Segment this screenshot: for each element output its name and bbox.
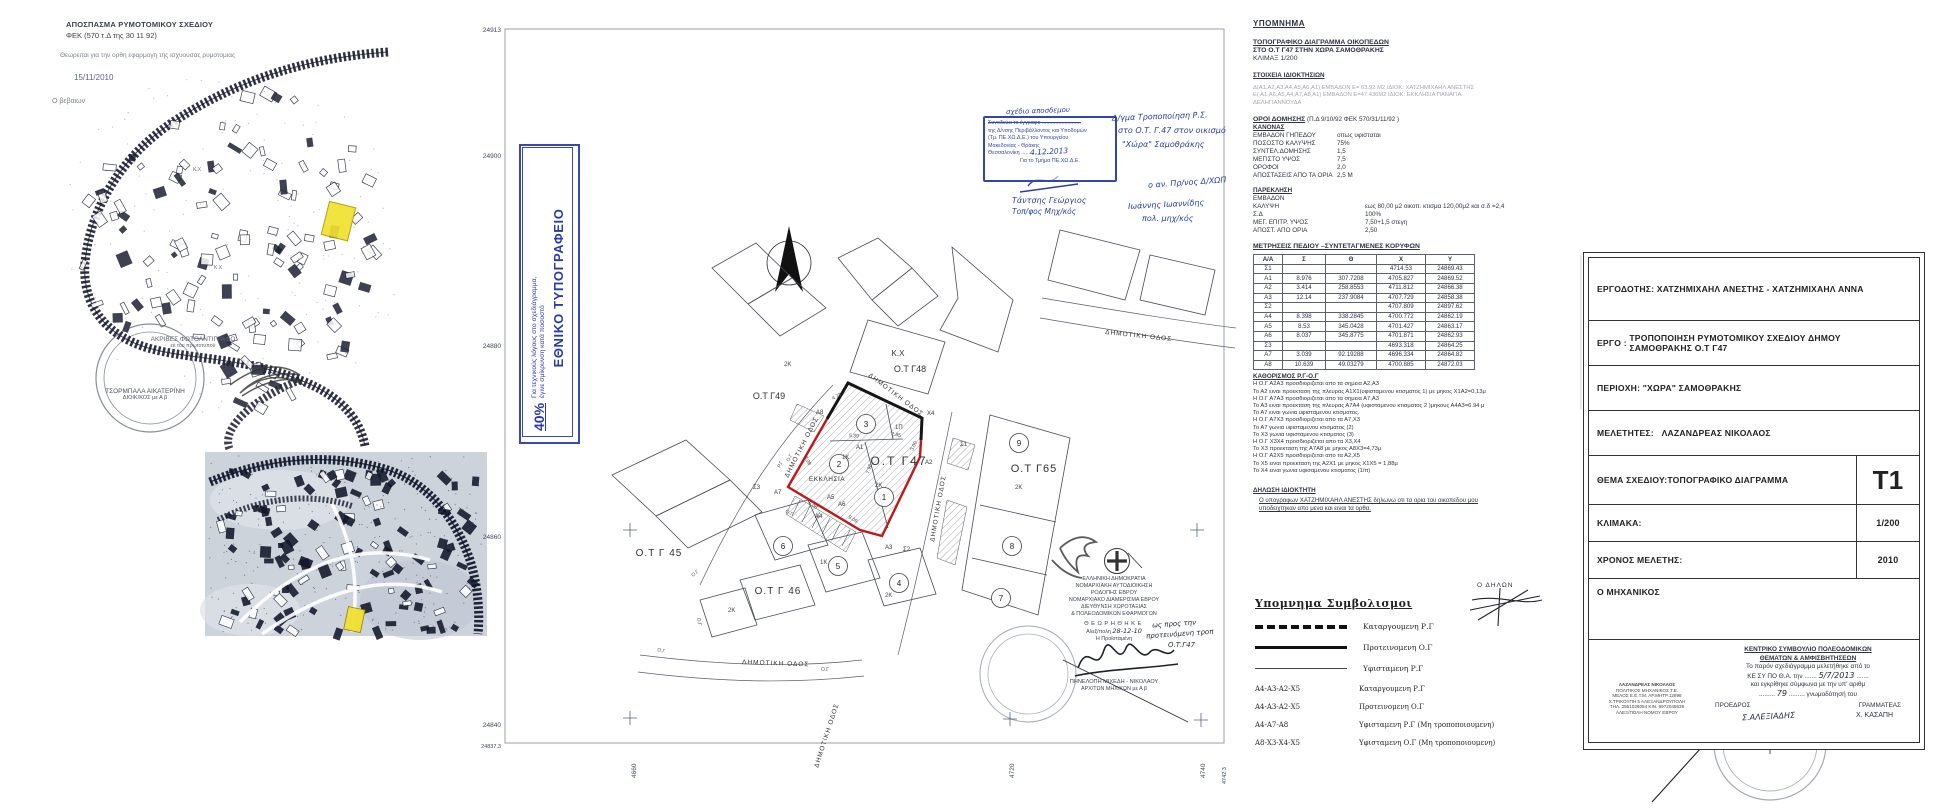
print-note-1: Για τεχνικούς λόγους στο σχεδιάγραμμα, [531, 277, 538, 398]
table-row: Α18.976307.72084705.82724869.52 [1254, 274, 1475, 284]
thin-line-sample [1255, 668, 1347, 669]
stamp-line6: Για το Τμήμα ΠΕ.ΧΩ.Δ.Ε. [988, 158, 1112, 166]
svg-text:Α2: Α2 [925, 460, 933, 466]
svg-text:4742.3: 4742.3 [1222, 767, 1228, 784]
kanonas-title: ΚΑΝΟΝΑΣ [1253, 124, 1577, 132]
approval-l1: ΕΛΛΗΝΙΚΗ ΔΗΜΟΚΡΑΤΙΑ [1033, 576, 1195, 583]
approval-hand-note3: Ο.Τ.Γ47 [1168, 641, 1195, 649]
symbol-code-row: Α4-Α3-Α2-Χ5Καταργουμενη Ρ.Γ [1255, 685, 1555, 693]
col-th: Θ [1326, 255, 1377, 265]
map-extract-bottom [200, 452, 487, 640]
parekl-label: Σ.Δ [1253, 211, 1365, 219]
symbol-label: Καταργουμενη Ρ.Γ [1359, 685, 1425, 693]
kath-line: Το Α7 ειναι γωνια υφισταμενου κτισματος. [1253, 410, 1577, 417]
approval-hand-date: 28-12-10 [1112, 627, 1142, 635]
svg-text:4720: 4720 [1009, 763, 1016, 778]
svg-text:Ο.Τ Γ 46: Ο.Τ Γ 46 [755, 586, 802, 597]
printing-office-box: 40% Για τεχνικούς λόγους στο σχεδιάγραμμ… [519, 144, 580, 444]
svg-text:Ο.Τ Γ49: Ο.Τ Γ49 [753, 391, 785, 401]
svg-text:Χ4: Χ4 [927, 411, 935, 417]
ownership-3: ΔΕΛΗΓΙΑΝΝΟΥΔΑ [1253, 100, 1577, 107]
axis-bottom-labels: 4660 4720 4740 4742.3 [631, 763, 1228, 784]
kanonas-label: ΠΟΣΟΣΤΟ ΚΑΛΥΨΗΣ [1253, 140, 1337, 148]
svg-text:3: 3 [864, 420, 869, 429]
svg-text:1Κ: 1Κ [820, 560, 827, 566]
decl-line2: υποδειχτηκαν απο μενα και ειναι τα ορθα. [1259, 505, 1577, 513]
table-row: Α312.14237.90844707.72924858.38 [1254, 293, 1475, 303]
approval-l4: ΝΟΜΑΡΧΙΑΚΟ ΔΙΑΜΕΡΙΣΜΑ ΕΒΡΟΥ [1033, 597, 1195, 604]
kath-line: Το Α3 ειναι προεκταση της πλευρας Α7Α4 (… [1253, 403, 1577, 410]
svg-text:24837.3: 24837.3 [481, 744, 501, 750]
col-s: Σ [1283, 255, 1326, 265]
council-line: ......... γνωμοδότησή του [1789, 691, 1857, 698]
svg-text:9: 9 [1017, 439, 1022, 448]
parekl-label: ΑΠΟΣΤ. ΑΠΟ ΟΡΙΑ [1253, 227, 1365, 235]
svg-text:2Κ: 2Κ [1015, 485, 1022, 491]
table-row: Σ34693.31824864.25 [1254, 341, 1475, 351]
svg-text:4660: 4660 [631, 763, 638, 778]
scale-label: ΚΛΙΜΑΚΑ: [1589, 505, 1856, 541]
copy-stamp-name: ΤΣΟΡΜΠΑΛΑ ΑΙΚΑΤΕΡΙΝΗ [75, 388, 215, 395]
kath-line: Η Ο.Γ Χ3Χ4 προσδιοριζεται απο τα Χ3,Χ4 [1253, 439, 1577, 446]
extract-header: ΑΠΟΣΠΑΣΜΑ ΡΥΜΟΤΟΜΙΚΟΥ ΣΧΕΔΙΟΥ ΦΕΚ (570 τ… [30, 20, 330, 105]
axis-left-labels: 24913 24900 24880 24860 24840 24837.3 [481, 27, 501, 750]
svg-text:Σ2: Σ2 [903, 547, 911, 553]
engineer-stamp: ΛΑΖΑΝΔΡΕΑΣ ΝΙΚΟΛΑΟΣ ΠΟΛΙΤΙΚΟΣ ΜΗΧΑΝΙΚΟΣ … [1593, 682, 1701, 742]
svg-text:Ο.Γ: Ο.Γ [695, 617, 702, 626]
highlighted-plot-top-map [321, 201, 355, 241]
engineer-label: Ο ΜΗΧΑΝΙΚΟΣ [1597, 587, 1660, 597]
svg-text:24860: 24860 [483, 534, 501, 541]
svg-text:Α5: Α5 [827, 495, 835, 501]
extract-fek: ΦΕΚ (570 τ.Δ της 30 11 92) [66, 31, 330, 40]
kath-line: Το Χ4 ειναι γωνια υφισαμενου κτισματος (… [1253, 468, 1577, 475]
parekl-label: ΕΜΒΑΔΟΝ [1253, 195, 1365, 203]
council-line: ....... [1856, 673, 1868, 680]
svg-text:2Κ: 2Κ [728, 608, 735, 614]
title-block: ΕΡΓΟΔΟΤΗΣ: ΧΑΤΖΗΜΙΧΑΗΛ ΑΝΕΣΤΗΣ - ΧΑΤΖΗΜΙ… [1583, 252, 1925, 750]
extract-title: ΑΠΟΣΠΑΣΜΑ ΡΥΜΟΤΟΜΙΚΟΥ ΣΧΕΔΙΟΥ [66, 20, 330, 29]
legend-column: ΥΠΟΜΝΗΜΑ ΤΟΠΟΓΡΑΦΙΚΟ ΔΙΑΓΡΑΜΜΑ ΟΙΚΟΠΕΔΩΝ… [1253, 20, 1577, 513]
approval-name: ΠΗΝΕΛΟΠΗ ΜΙΧΕΔΗ - ΝΙΚΟΛΑΟΥ [1033, 679, 1195, 686]
kanonas-label: ΜΕΓΙΣΤΟ ΥΨΟΣ [1253, 156, 1337, 164]
parekl-value: 2,50 [1365, 227, 1377, 235]
parekl-value: εως 80,00 μ2 οικοπ. κτισμα 120,00μ2 και … [1365, 203, 1504, 211]
kath-line: Η Ο.Γ Α2Α3 προσδιοριζεται απο τα σημεια … [1253, 381, 1577, 388]
symbol-label: Προτεινομενη Ο.Γ [1363, 643, 1432, 652]
parekl-value: 7,50+1,5 στεγη [1365, 219, 1407, 227]
employer-label: ΕΡΓΟΔΟΤΗΣ: [1597, 284, 1654, 294]
symbol-row: Υφισταμενη Ρ.Γ [1255, 664, 1555, 673]
svg-text:Σ3: Σ3 [753, 485, 761, 491]
copy-stamp-name-block: ΤΣΟΡΜΠΑΛΑ ΑΙΚΑΤΕΡΙΝΗ ΔΙΟΙΚ/ΚΟΣ με Α β [75, 388, 215, 401]
engineer-stamp-line: ΑΛΕΞ/ΠΟΛΗ ΝΟΜΟΥ ΕΒΡΟΥ [1593, 710, 1701, 716]
symbol-label: Υφισταμενη Ρ.Γ [1363, 664, 1423, 673]
decl-line1: Ο υπογραφων ΧΑΤΖΗΜΙΧΑΗΛ ΑΝΕΣΤΗΣ δηλωνω ο… [1259, 497, 1577, 505]
svg-text:Α4: Α4 [815, 514, 823, 520]
symbols-legend: Υπομνημα Συμβολισμοι Καταργουμενη Ρ.Γ Πρ… [1255, 597, 1555, 757]
col-aa: Α/Α [1254, 255, 1283, 265]
coords-table-title: ΜΕΤΡΗΣΕΙΣ ΠΕΔΙΟΥ –ΣΥΝΤΕΤΑΓΜΕΝΕΣ ΚΟΡΥΦΩΝ [1253, 243, 1577, 251]
svg-text:ΔΗΜΟΤΙΚΗ ΟΔΟΣ: ΔΗΜΟΤΙΚΗ ΟΔΟΣ [813, 702, 840, 768]
symbol-row: Καταργουμενη Ρ.Γ [1255, 622, 1555, 631]
svg-text:Ρ.Γ: Ρ.Γ [776, 460, 785, 469]
copy-stamp-text: ΑΚΡΙΒΕΣ ΦΩΤΟΑΝΤΙΓΡΑΦΟ εκ του πρωτοτυπου [128, 336, 258, 349]
sheet-number: Τ1 [1856, 456, 1919, 504]
declarant-label: Ο ΔΗΛΩΝ [1477, 582, 1513, 589]
svg-text:Κ.Χ: Κ.Χ [892, 349, 906, 358]
dashed-line-sample [1255, 625, 1347, 629]
council-title2: ΘΕΜΑΤΩΝ & ΑΜΦΙΣΒΗΤΗΣΕΩΝ [1701, 655, 1915, 664]
area-row: ΠΕΡΙΟΧΗ: "ΧΩΡΑ" ΣΑΜΟΘΡΑΚΗΣ [1589, 366, 1919, 411]
signature-zone: ΛΑΖΑΝΔΡΕΑΣ ΝΙΚΟΛΑΟΣ ΠΟΛΙΤΙΚΟΣ ΜΗΧΑΝΙΚΟΣ … [1589, 640, 1919, 742]
scale-value: 1/200 [1856, 505, 1919, 541]
approval-l3: ΡΟΔΟΠΗΣ ΕΒΡΟΥ [1033, 590, 1195, 597]
project-label: ΕΡΓΟ : [1597, 338, 1627, 348]
extract-date: 15/11/2010 [74, 73, 330, 82]
svg-text:2Κ: 2Κ [885, 593, 892, 599]
project-line1: ΤΡΟΠΟΠΟΙΗΣΗ ΡΥΜΟΤΟΜΙΚΟΥ ΣΧΕΔΙΟΥ ΔΗΜΟΥ [1629, 333, 1840, 343]
symbol-label: Καταργουμενη Ρ.Γ [1363, 622, 1434, 631]
copy-stamp-line1: ΑΚΡΙΒΕΣ ΦΩΤΟΑΝΤΙΓΡΑΦΟ [128, 336, 258, 343]
ownership-1: Δ(Α1,Α2,Α3,Α4,Α5,Α6,Α1) ΕΜΒΑΔΟΝ Ε= 63.92… [1253, 85, 1577, 92]
kath-line: Το Α7 γωνια υφισταμενου κτισματος (2) [1253, 425, 1577, 432]
handstamp-scribble [1052, 537, 1096, 578]
project-row: ΕΡΓΟ : ΤΡΟΠΟΠΟΙΗΣΗ ΡΥΜΟΤΟΜΙΚΟΥ ΣΧΕΔΙΟΥ Δ… [1589, 321, 1919, 366]
legend-sub2: ΣΤΟ Ο.Τ Γ47 ΣΤΗΝ ΧΩΡΑ ΣΑΜΟΘΡΑΚΗΣ [1253, 47, 1577, 55]
kath-line: Το Χ3 γωνια υφισταμενου κτισματος (3) [1253, 432, 1577, 439]
annotation-line6: πολ. μηχ/κός [1142, 214, 1193, 223]
svg-text:7: 7 [999, 594, 1004, 603]
svg-text:Ο.Γ: Ο.Γ [656, 647, 666, 655]
copy-stamp-role: ΔΙΟΙΚ/ΚΟΣ με Α β [75, 395, 215, 401]
kanonas-value: 1,5 [1337, 148, 1346, 156]
kanonas-label: ΕΜΒΑΔΟΝ ΓΗΠΕΔΟΥ [1253, 132, 1337, 140]
table-row: Α58.53345.04284701.42724863.17 [1254, 322, 1475, 332]
vertex-code: Α4-Α7-Α8 [1255, 721, 1359, 729]
annotation-line2: στο Ο.Τ. Γ.47 στον οικισμό [1118, 126, 1226, 135]
council-line: και εγκρίθηκε σύμφωνα με την υπ' αριθμ [1701, 681, 1915, 690]
scale-row: ΚΛΙΜΑΚΑ: 1/200 [1589, 505, 1919, 542]
employer-row: ΕΡΓΟΔΟΤΗΣ: ΧΑΤΖΗΜΙΧΑΗΛ ΑΝΕΣΤΗΣ - ΧΑΤΖΗΜΙ… [1589, 258, 1919, 321]
svg-text:8: 8 [1010, 542, 1015, 551]
extract-certifier: Ο βεβαιων [52, 98, 330, 105]
parekl-label: ΜΕΓ. ΕΠΙΤΡ. ΥΨΟΣ [1253, 219, 1365, 227]
secretary-name: Χ. ΚΑΣΑΠΗ [1856, 712, 1893, 719]
svg-text:1Π: 1Π [895, 425, 903, 431]
svg-text:4: 4 [897, 579, 902, 588]
council-line: ......... [1759, 691, 1775, 698]
symbols-title: Υπομνημα Συμβολισμοι [1255, 597, 1555, 610]
legend-title: ΥΠΟΜΝΗΜΑ [1253, 20, 1577, 28]
svg-text:ΔΗΜΟΤΙΚΗ ΟΔΟΣ: ΔΗΜΟΤΙΚΗ ΟΔΟΣ [1105, 329, 1173, 343]
col-y: Υ [1426, 255, 1475, 265]
kath-title: ΚΑΘΟΡΙΣΜΟΣ Ρ.Γ-Ο.Γ [1253, 373, 1577, 381]
svg-text:24913: 24913 [483, 27, 501, 34]
council-line: ΚΕ ΣΥ ΠΟ Θ.Α. την ....... [1747, 673, 1817, 680]
drawing-sheet: Κ.Χ Κ.Χ 24913 [0, 0, 1944, 812]
print-note-2: έγινε σμίκρυνση κατά ποσοστό [539, 305, 546, 398]
parekl-title: ΠΑΡΕΚΛΗΣΗ [1253, 187, 1577, 195]
table-row: Α48.398338.28454700.77224862.19 [1254, 312, 1475, 322]
secretary-label: ΓΡΑΜΜΑΤΕΑΣ [1859, 702, 1901, 711]
symbol-label: Προτεινομενη Ο.Γ [1359, 703, 1424, 711]
decl-title: ΔΗΛΩΣΗ ΙΔΙΟΚΤΗΤΗ [1253, 487, 1577, 495]
vertex-code: Α4-Α3-Α2-Χ5 [1255, 703, 1359, 711]
approval-l6: & ΠΟΛΕΟΔΟΜΙΚΩΝ ΕΦΑΡΜΟΓΩΝ [1033, 611, 1195, 618]
terms-title: ΟΡΟΙ ΔΟΜΗΣΗΣ [1253, 116, 1305, 123]
stamp-signer-role: Τοπ/φος Μηχ/κός [1012, 207, 1076, 216]
printing-office-title: ΕΘΝΙΚΟ ΤΥΠΟΓΡΑΦΕΙΟ [551, 147, 566, 431]
approval-place: Αλεξ/πολη [1086, 629, 1111, 635]
copy-stamp-line2: εκ του πρωτοτυπου [128, 343, 258, 349]
kanonas-value: 2,5 Μ [1337, 172, 1353, 180]
approval-l2: ΝΟΜΑΡΧΙΑΚΗ ΑΥΤΟΔΙΟΙΚΗΣΗ [1033, 583, 1195, 590]
parekl-value: 100% [1365, 211, 1381, 219]
employer-value: ΧΑΤΖΗΜΙΧΑΗΛ ΑΝΕΣΤΗΣ - ΧΑΤΖΗΜΙΧΑΗΛ ΑΝΝΑ [1657, 284, 1864, 294]
stamp-line1: Συνοδεύει το έγγραφο ...................… [988, 120, 1081, 126]
svg-text:24900: 24900 [483, 153, 501, 160]
kath-line: Το Χ3 προεκταση της Α7Α8 με μηκος Α8Χ3=4… [1253, 446, 1577, 453]
time-row: ΧΡΟΝΟΣ ΜΕΛΕΤΗΣ: 2010 [1589, 542, 1919, 579]
council-hand-date: 5/7/2013 [1819, 671, 1855, 680]
project-line2: ΣΑΜΟΘΡΑΚΗΣ Ο.Τ Γ47 [1629, 343, 1727, 353]
stamp-signer-name: Τάντσης Γεώργιος [1012, 196, 1086, 205]
kanonas-label: ΟΡΟΦΟΙ [1253, 164, 1337, 172]
svg-text:1Κ: 1Κ [842, 455, 849, 461]
svg-text:Ο.Τ Γ 45: Ο.Τ Γ 45 [636, 548, 683, 559]
svg-text:5.39: 5.39 [849, 433, 859, 440]
svg-text:1: 1 [882, 493, 887, 502]
svg-text:Σ1: Σ1 [960, 442, 968, 448]
approval-l5: ΔΙΕΥΘΥΝΣΗ ΧΩΡΟΤΑΞΙΑΣ [1033, 604, 1195, 611]
svg-text:Α3: Α3 [885, 545, 893, 551]
svg-text:2: 2 [837, 460, 842, 469]
designers-value: ΛΑΖΑΝΔΡΕΑΣ ΝΙΚΟΛΑΟΣ [1662, 428, 1771, 438]
symbol-code-row: Α8-Χ3-Χ4-Χ5Υφισταμενη Ο.Γ (Μη τροποποιου… [1255, 739, 1555, 747]
svg-text:Κ.Χ: Κ.Χ [214, 265, 223, 271]
council-hand-number: 79 [1777, 689, 1787, 698]
designers-label: ΜΕΛΕΤΗΤΕΣ: [1597, 428, 1654, 438]
svg-text:2Κ: 2Κ [784, 362, 791, 368]
stamp-line3: (Τμ. ΠΕ.ΧΩ.Δ.Ε.) του Υπουργείου [988, 135, 1112, 143]
coords-table: Α/Α Σ Θ Χ Υ Σ14714.5324869.43 Α18.976307… [1253, 254, 1475, 370]
svg-text:24840: 24840 [483, 722, 501, 729]
greek-emblem-icon [1105, 549, 1130, 574]
extract-certify-note: Θεωρειται για την ορθη εφαρμογη της ισχυ… [60, 52, 330, 59]
svg-text:ΕΚΚΛΗΣΙΑ: ΕΚΚΛΗΣΙΑ [809, 476, 845, 483]
table-row: Α68.037345.87754701.87124862.93 [1254, 331, 1475, 341]
council-title1: ΚΕΝΤΡΙΚΟ ΣΥΜΒΟΥΛΙΟ ΠΟΛΕΟΔΟΜΙΚΩΝ [1701, 646, 1915, 655]
kanonas-value: οπως υφισταται [1337, 132, 1381, 140]
symbol-code-row: Α4-Α7-Α8Υφισταμενη Ρ.Γ (Μη τροποποιουμεν… [1255, 721, 1555, 729]
kanonas-value: 75% [1337, 140, 1350, 148]
svg-text:4740: 4740 [1200, 763, 1207, 778]
kanonas-label: ΣΥΝΤΕΛ.ΔΟΜΗΣΗΣ [1253, 148, 1337, 156]
svg-text:ΔΗΜΟΤΙΚΗ ΟΔΟΣ: ΔΗΜΟΤΙΚΗ ΟΔΟΣ [742, 659, 810, 668]
svg-text:Α8: Α8 [816, 410, 824, 416]
svg-text:24880: 24880 [483, 343, 501, 350]
svg-text:Ο.Γ: Ο.Γ [821, 667, 829, 673]
council-approval: ΚΕΝΤΡΙΚΟ ΣΥΜΒΟΥΛΙΟ ΠΟΛΕΟΔΟΜΙΚΩΝ ΘΕΜΑΤΩΝ … [1701, 646, 1915, 742]
symbol-code-row: Α4-Α3-Α2-Χ5Προτεινομενη Ο.Γ [1255, 703, 1555, 711]
reduction-percent: 40% [531, 403, 547, 431]
kanonas-value: 7,5 [1337, 156, 1346, 164]
legend-sub3: ΚΛΙΜΑΞ 1/200 [1253, 55, 1577, 63]
north-arrow-icon [767, 226, 811, 292]
svg-text:Ο.Τ Γ65: Ο.Τ Γ65 [1011, 463, 1057, 475]
vertex-code: Α8-Χ3-Χ4-Χ5 [1255, 739, 1359, 747]
subject-row: ΘΕΜΑ ΣΧΕΔΙΟΥ:ΤΟΠΟΓΡΑΦΙΚΟ ΔΙΑΓΡΑΜΜΑ Τ1 [1589, 456, 1919, 505]
time-value: 2010 [1856, 542, 1919, 578]
svg-text:Α6: Α6 [838, 502, 846, 508]
stamp-line2: της Δ/νσης Περιβάλλοντος και Υποδομών [988, 128, 1112, 136]
kath-line: Η Ο.Γ Α2Χ5 προσδιοριζεται απο τα Α2,Χ5 [1253, 453, 1577, 460]
svg-text:Α1: Α1 [856, 445, 864, 451]
svg-text:6: 6 [781, 542, 786, 551]
subject-value: ΘΕΜΑ ΣΧΕΔΙΟΥ:ΤΟΠΟΓΡΑΦΙΚΟ ΔΙΑΓΡΑΜΜΑ [1589, 456, 1856, 504]
annotation-line3: "Χώρα" Σαμοθράκης [1122, 140, 1204, 149]
block-g47 [786, 383, 975, 565]
table-row: Α73.03992.192884696.33424864.82 [1254, 351, 1475, 361]
ownership-title: ΣΤΟΙΧΕΙΑ ΙΔΙΟΚΤΗΣΙΩΝ [1253, 72, 1577, 80]
svg-text:Κ.Χ: Κ.Χ [193, 167, 202, 173]
symbol-label: Υφισταμενη Ο.Γ (Μη τροποποιουμενη) [1359, 739, 1495, 747]
council-line: Το παρόν σχεδιάγραμμα μελετήθηκε από το [1701, 663, 1915, 672]
president-label: ΠΡΟΕΔΡΟΣ [1715, 702, 1751, 711]
table-row: Α23.414258.85534711.81224866.38 [1254, 284, 1475, 294]
designers-row: ΜΕΛΕΤΗΤΕΣ: ΛΑΖΑΝΔΡΕΑΣ ΝΙΚΟΛΑΟΣ [1589, 411, 1919, 456]
table-row: Σ14714.5324869.43 [1254, 264, 1475, 274]
kanonas-label: ΑΠΟΣΤΑΣΕΙΣ ΑΠΟ ΤΑ ΟΡΙΑ [1253, 172, 1337, 180]
col-x: Χ [1377, 255, 1426, 265]
parekl-label: ΚΑΛΥΨΗ [1253, 203, 1365, 211]
symbol-label: Υφισταμενη Ρ.Γ (Μη τροποποιουμενη) [1359, 721, 1494, 729]
ownership-2: Ε( Α1,Α6,Α5,Α4,Α7,Α8,Α1) ΕΜΒΑΔΟΝ Ε=47.43… [1253, 92, 1577, 99]
table-row: Α810.63949.032794700.88524872.03 [1254, 360, 1475, 370]
svg-text:Ο.Τ Γ48: Ο.Τ Γ48 [894, 364, 926, 374]
kath-line: Η Ο.Γ Α7Α3 προσδιοριζεται απο τα σημεια … [1253, 396, 1577, 403]
vertex-code: Α4-Α3-Α2-Χ5 [1255, 685, 1359, 693]
kath-line: Το Α2 ειναι προεκταση της πλευρας Α1Χ1(υ… [1253, 389, 1577, 396]
kanonas-value: 2,0 [1337, 164, 1346, 172]
thick-line-sample [1255, 646, 1347, 649]
legend-sub1: ΤΟΠΟΓΡΑΦΙΚΟ ΔΙΑΓΡΑΜΜΑ ΟΙΚΟΠΕΔΩΝ [1253, 39, 1577, 47]
area-value: ΠΕΡΙΟΧΗ: "ΧΩΡΑ" ΣΑΜΟΘΡΑΚΗΣ [1597, 383, 1741, 393]
svg-text:Ο.Τ Γ47: Ο.Τ Γ47 [870, 454, 927, 468]
kath-line: Το Χ5 ειναι προεκταση της Α2Χ1 με μηκος … [1253, 461, 1577, 468]
svg-text:5: 5 [836, 562, 841, 571]
symbol-row: Προτεινομενη Ο.Γ [1255, 643, 1555, 652]
svg-text:2Κ: 2Κ [875, 483, 882, 489]
svg-text:Ο.Γ: Ο.Γ [690, 569, 700, 579]
time-label: ΧΡΟΝΟΣ ΜΕΛΕΤΗΣ: [1589, 542, 1856, 578]
approval-role: ΑΡΧ/ΤΩΝ ΜΗΧ/ΚΩΝ με Α β [1033, 686, 1195, 693]
table-row: Σ24707.80924897.62 [1254, 303, 1475, 313]
engineer-row: Ο ΜΗΧΑΝΙΚΟΣ [1589, 579, 1919, 640]
svg-text:Α7: Α7 [774, 490, 782, 496]
kath-line: Η Ο.Γ Α7Χ3 προσδιοριζεται απο τα Α7,Χ3 [1253, 417, 1577, 424]
terms-ref: (Π.Δ 9/10/92 ΦΕΚ 570/31/11/92 ) [1307, 116, 1399, 123]
